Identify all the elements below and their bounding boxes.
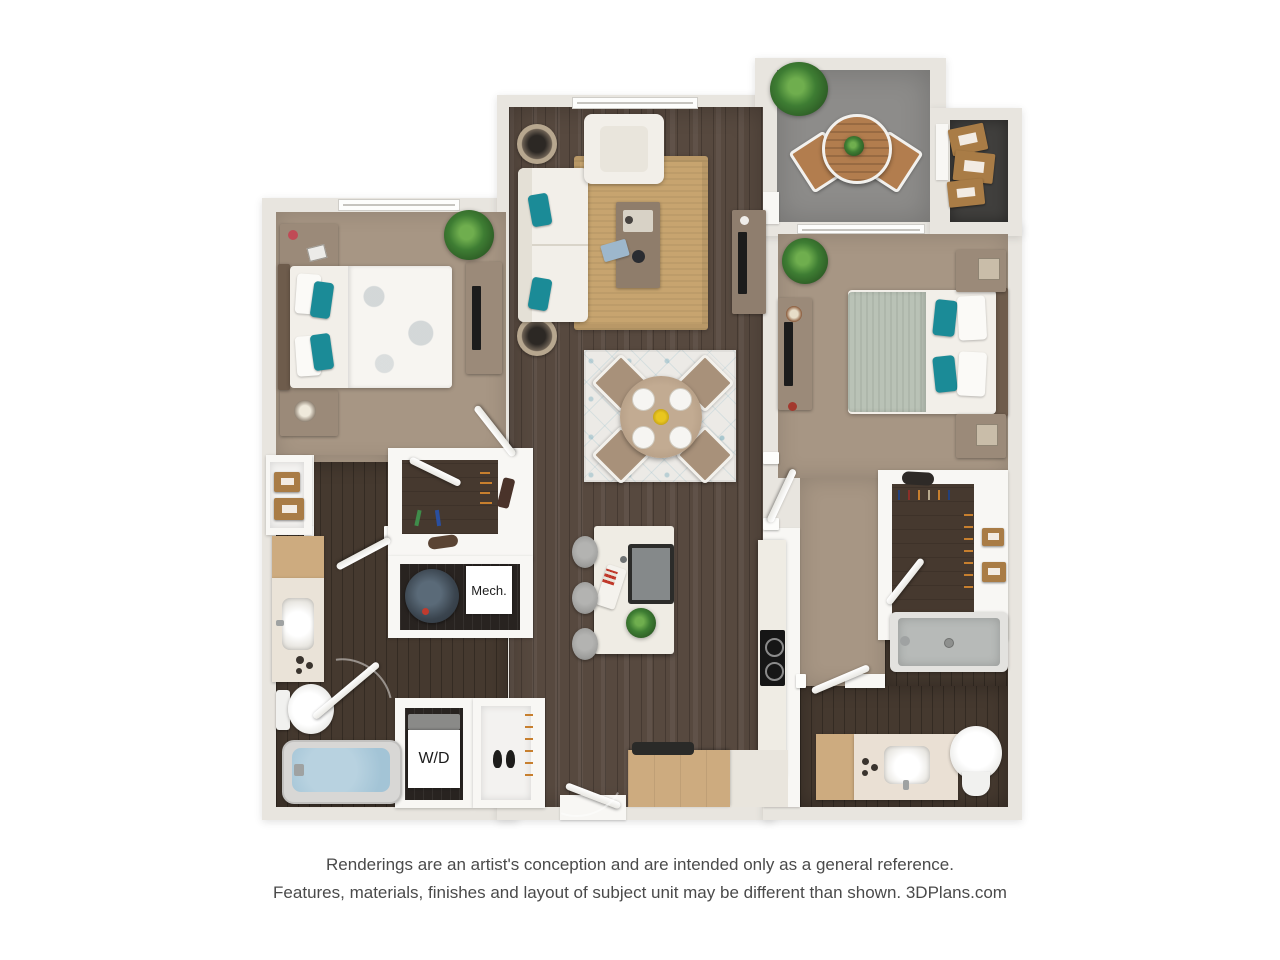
decor-vase: [788, 402, 797, 411]
water-heater-valve: [422, 608, 429, 615]
plate: [632, 426, 655, 449]
plate: [669, 388, 692, 411]
decor-tray: [976, 424, 998, 446]
plant: [770, 62, 828, 116]
kitchen-counter-corner: [728, 750, 788, 807]
hanger-icon: [480, 502, 492, 504]
vanity-wood: [272, 536, 324, 578]
shoes-icon: [506, 750, 515, 768]
hanger-icon: [898, 490, 900, 500]
hanger-icon: [964, 538, 973, 540]
storage-box: [982, 562, 1006, 582]
burner-icon: [765, 662, 784, 681]
balcony-sliding-door: [797, 224, 925, 234]
hanger-icon: [525, 738, 533, 740]
bed-blanket: [848, 292, 926, 412]
kitchen-base-cabinets: [628, 750, 730, 807]
lamp-icon: [294, 400, 316, 422]
plant: [626, 608, 656, 638]
hanger-icon: [525, 762, 533, 764]
decor-soap: [871, 764, 878, 771]
bathroom-sink: [884, 746, 930, 784]
armchair-cushion: [600, 126, 648, 172]
decor-soap: [296, 668, 302, 674]
bed-headboard: [994, 288, 1008, 416]
mech-room: Mech.: [388, 556, 533, 638]
toilet-base: [962, 772, 990, 796]
hanger-icon: [928, 490, 930, 500]
wd-label-text: W/D: [418, 750, 449, 768]
burner-icon: [765, 638, 784, 657]
nightstand: [956, 414, 1006, 458]
nightstand: [280, 224, 338, 268]
hanger-icon: [964, 526, 973, 528]
bar-stool: [572, 628, 598, 660]
plate: [669, 426, 692, 449]
floorplan-page: Mech. W/D: [0, 0, 1280, 960]
right-closet-floor: [892, 484, 974, 628]
floorplan: Mech. W/D: [0, 0, 1280, 960]
storage-closet-door: [936, 124, 948, 180]
nightstand: [280, 390, 338, 436]
tv: [472, 286, 481, 350]
storage-item: [497, 477, 516, 509]
cardboard-box: [947, 178, 986, 208]
disclaimer-line2: Features, materials, finishes and layout…: [0, 883, 1280, 903]
plate: [632, 388, 655, 411]
table-plant: [844, 136, 864, 156]
right-bedroom-floor-strip: [800, 478, 885, 686]
hanger-icon: [480, 472, 490, 474]
storage-box: [982, 528, 1004, 546]
decor-sphere: [740, 216, 749, 225]
hanger-icon: [908, 490, 910, 500]
sink-faucet: [276, 620, 284, 626]
hanger-icon: [964, 586, 973, 588]
bed-duvet: [348, 266, 452, 388]
decor-phone: [307, 244, 328, 262]
hanger-icon: [480, 492, 490, 494]
tub-faucet: [294, 764, 304, 776]
decor-tray: [978, 258, 1000, 280]
decor-vase: [632, 250, 645, 263]
hanger-icon: [525, 726, 533, 728]
pillow: [957, 351, 987, 396]
washer-dryer-label: W/D: [408, 730, 460, 788]
decor-cup: [625, 216, 633, 224]
tv: [784, 322, 793, 386]
decor-flowers: [288, 230, 298, 240]
mech-label: Mech.: [466, 566, 512, 614]
centerpiece-flowers: [653, 409, 669, 425]
duffel-bag: [902, 471, 935, 486]
decor-soap: [862, 770, 868, 776]
shower-drain: [944, 638, 954, 648]
floor-lamp-icon: [517, 316, 557, 356]
decor-soap: [296, 656, 304, 664]
storage-box: [274, 498, 304, 520]
vanity-wood: [816, 734, 854, 800]
left-closet: [388, 448, 533, 560]
floor-lamp-icon: [517, 124, 557, 164]
accent-pillow: [932, 355, 958, 393]
hanger-icon: [964, 514, 973, 516]
bed-headboard: [278, 264, 290, 390]
hanger-icon: [525, 714, 533, 716]
hanger-icon: [938, 490, 940, 500]
nightstand: [956, 250, 1006, 292]
accent-pillow: [932, 299, 958, 337]
hanger-icon: [480, 482, 492, 484]
hanger-icon: [948, 490, 950, 500]
disclaimer: Renderings are an artist's conception an…: [0, 855, 1280, 903]
clutch-item: [427, 534, 458, 550]
hanger-icon: [964, 550, 973, 552]
shower-faucet: [900, 636, 910, 646]
lamp-icon: [786, 306, 802, 322]
mech-label-text: Mech.: [471, 583, 506, 598]
laundry-closet: W/D: [395, 698, 473, 808]
decor-soap: [862, 758, 869, 765]
entry-closet: [473, 698, 545, 808]
hanger-icon: [964, 562, 973, 564]
water-heater-icon: [405, 569, 459, 623]
decor-soap: [306, 662, 313, 669]
washer-dryer-top: [408, 714, 460, 730]
linen-nook: [266, 455, 312, 535]
bar-stool: [572, 536, 598, 568]
plant: [782, 238, 828, 284]
bathtub-water: [292, 748, 390, 792]
sink-faucet: [903, 780, 909, 790]
door-post: [763, 452, 779, 464]
island-sink: [628, 544, 674, 604]
hanger-icon: [918, 490, 920, 500]
door-post: [796, 674, 806, 688]
plant: [444, 210, 494, 260]
hanger-icon: [525, 774, 533, 776]
shoes-icon: [493, 750, 502, 768]
tv: [738, 232, 747, 294]
pillow: [957, 295, 987, 340]
hanger-icon: [525, 750, 533, 752]
sink-faucet: [620, 556, 627, 563]
stove-tray: [632, 742, 694, 755]
sofa-seam: [532, 244, 588, 246]
bathroom-sink: [282, 598, 314, 650]
disclaimer-line1: Renderings are an artist's conception an…: [0, 855, 1280, 875]
hanger-icon: [964, 574, 973, 576]
storage-box: [274, 472, 300, 492]
left-bedroom-window: [338, 199, 460, 211]
bar-stool: [572, 582, 598, 614]
armchair: [584, 114, 664, 184]
living-room-window: [572, 97, 698, 109]
